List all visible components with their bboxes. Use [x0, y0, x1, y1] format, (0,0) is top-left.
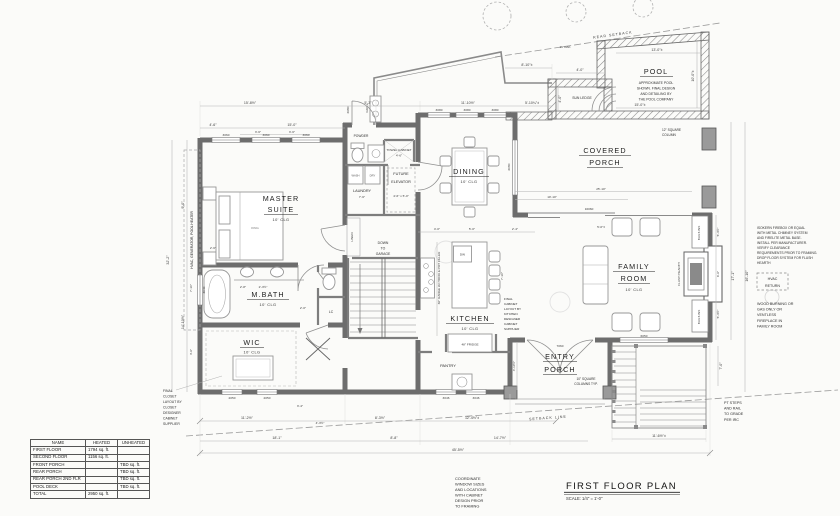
- stair-label: GARAGE: [376, 252, 391, 256]
- ceiling-height: 10' CLG: [462, 326, 479, 331]
- dimension-label: 5'-3½": [716, 228, 720, 237]
- armchair: [612, 218, 632, 236]
- dimension-label: 10'-10": [547, 195, 557, 199]
- dimension-label: 4'-0": [576, 68, 584, 72]
- room-label-family: ROOM: [621, 274, 648, 283]
- fireplace-spec-note: VERIFY CLEARANCE: [757, 246, 791, 250]
- dimension-label: 8'-8": [390, 436, 398, 440]
- dishwasher-label: DW: [460, 253, 465, 257]
- table-header-row: NAME HEATED UNHEATED: [31, 440, 150, 447]
- room-label-kitchen: KITCHEN: [450, 314, 489, 323]
- room-label-wic: WIC: [243, 338, 260, 347]
- room-label-powder: POWDER: [354, 134, 369, 138]
- room-label-elevator: ELEVATOR: [391, 180, 411, 184]
- dimension-label: 6'-6": [716, 271, 720, 277]
- dimension-label: 25'-10": [596, 187, 606, 191]
- dimension-label: 16'-10": [745, 270, 749, 282]
- closet-note: DESIGNER: [163, 411, 181, 415]
- table-row: FRONT PORCH TBD sq. ft.: [31, 461, 150, 468]
- pool-area: POOL APPROXIMATE POOL SHOWN. FINAL DESIG…: [506, 32, 709, 120]
- room-label-laundry: LAUNDRY: [353, 189, 372, 193]
- title-block: FIRST FLOOR PLAN SCALE: 1/4" = 1'-0": [564, 481, 680, 501]
- room-label-entry-porch: ENTRY: [545, 352, 575, 361]
- window-label: 3046: [473, 396, 480, 400]
- dimension-label: 8'-3½": [375, 416, 386, 420]
- dimension-label: 4'-6": [189, 349, 193, 355]
- dimension-label: 15'-8½": [244, 101, 257, 105]
- armchair: [640, 218, 660, 236]
- dimension-label: 9'-0": [181, 201, 185, 209]
- dimension-label: 2'-6": [210, 246, 216, 250]
- window-label: 3060: [303, 133, 310, 137]
- room-label-covered-porch: PORCH: [589, 158, 620, 167]
- chair: [440, 183, 451, 193]
- closet-note: FINAL: [163, 389, 173, 393]
- dimension-label: 5'-0": [469, 227, 475, 231]
- cabinet-note: DESIGNER: [504, 317, 521, 321]
- dimension-label: 4'-3½": [316, 421, 325, 425]
- row-name: FRONT PORCH: [31, 461, 86, 468]
- towel-cabinet-label: TOWEL CABINET: [386, 148, 411, 152]
- room-label-lc: LC: [329, 310, 334, 314]
- vanity: [368, 145, 384, 162]
- row-unheated: TBD sq. ft.: [118, 469, 150, 476]
- row-name: FIRST FLOOR: [31, 447, 86, 454]
- built-ins-label: BUILT-INS: [697, 310, 701, 325]
- row-heated: 1156 sq. ft.: [86, 454, 118, 461]
- dimension-label: 2'-4": [512, 227, 518, 231]
- dimension-label: 7'-10": [189, 284, 193, 292]
- window-label: 3080: [436, 108, 443, 112]
- room-label-covered-porch: COVERED: [583, 146, 626, 155]
- coordinate-note: TO FRAMING: [455, 504, 479, 509]
- dimension-label: 5'-0"±: [597, 225, 605, 229]
- cabinet-note: CABINET: [504, 302, 518, 306]
- dimension-label: 18'-1": [272, 436, 282, 440]
- dimension-label: 7'-6": [359, 195, 365, 199]
- room-label-master: SUITE: [268, 205, 295, 214]
- cabinet-note: SUPPLIER: [504, 327, 520, 331]
- stool: [489, 279, 500, 290]
- dimension-label: 4'-0": [558, 95, 562, 103]
- dimension-label: 5'-3": [364, 101, 372, 105]
- sheet-title: FIRST FLOOR PLAN: [566, 481, 677, 492]
- room-label-pantry: PANTRY: [440, 363, 456, 368]
- dimension-label: 3'-4": [297, 404, 303, 408]
- dimension-label: 2'-0": [300, 306, 306, 310]
- row-unheated: TBD sq. ft.: [118, 461, 150, 468]
- fridge-label: 48" FRIDGE: [461, 343, 478, 347]
- cabinet-note: KITCHEN: [504, 312, 518, 316]
- ceiling-height: 10' CLG: [273, 217, 290, 222]
- cabinet-note: FINAL: [504, 297, 513, 301]
- bed-label: KING: [251, 226, 259, 230]
- row-unheated: TBD sq. ft.: [118, 483, 150, 490]
- column-note: 12" SQUARE: [662, 128, 681, 132]
- row-name: TOTAL: [31, 491, 86, 498]
- room-label-dining: DINING: [453, 167, 485, 176]
- coordinate-note: COORDINATE: [455, 476, 481, 481]
- ceiling-height: 10' CLG: [626, 287, 643, 292]
- row-name: SECOND FLOOR: [31, 454, 86, 461]
- nightstand: [203, 187, 216, 200]
- stool: [489, 265, 500, 276]
- tree-canopy: [566, 2, 586, 22]
- toilet: [322, 268, 336, 274]
- room-label-family: FAMILY: [618, 262, 650, 271]
- wood-burning-note: GAS ONLY OR: [757, 308, 782, 312]
- sun-ledge-label: SUN LEDGE: [572, 96, 592, 100]
- dimension-label: 3'-6": [289, 130, 295, 134]
- chair: [488, 156, 499, 166]
- chair: [464, 207, 475, 217]
- dimension-label: 4'-10½": [512, 361, 516, 371]
- dimension-label: 45'-5½": [452, 448, 465, 452]
- pool-note: THE POOL COMPANY: [639, 98, 675, 102]
- chair: [488, 183, 499, 193]
- wood-burning-note: VENTLESS: [757, 313, 777, 317]
- table-row: POOL DECK TBD sq. ft.: [31, 483, 150, 490]
- area-table: NAME HEATED UNHEATED FIRST FLOOR 1794 sq…: [30, 439, 150, 499]
- dryer-label: DRY: [370, 174, 376, 178]
- stool: [489, 251, 500, 262]
- deck-steps: [612, 344, 707, 429]
- window-label: 2050: [264, 396, 271, 400]
- dimension-label: 11'-10½": [461, 101, 476, 105]
- armchair: [640, 313, 660, 331]
- sofa: [583, 246, 608, 304]
- cabinet-note: LAYOUT BY: [504, 307, 521, 311]
- dimension-label: 4'-6" x 5'-0": [393, 194, 409, 198]
- row-heated: [86, 469, 118, 476]
- dimension-label: 4'-6": [209, 123, 217, 127]
- table-row: FIRST FLOOR 1794 sq. ft.: [31, 447, 150, 454]
- room-label-entry-porch: PORCH: [544, 365, 575, 374]
- row-heated: 1794 sq. ft.: [86, 447, 118, 454]
- window-label: 6050: [641, 334, 648, 338]
- dimension-label: 5'-10¼"±: [525, 101, 539, 105]
- dimension-label: 12'-4½"±: [465, 416, 479, 420]
- window-label: 3080: [464, 108, 471, 112]
- row-name: REAR PORCH: [31, 469, 86, 476]
- pool-wall: [701, 32, 709, 119]
- row-heated: 2950 sq. ft.: [86, 491, 118, 498]
- room-label-elevator: FUTURE: [393, 172, 409, 176]
- dimension-label: 17'-1": [731, 271, 735, 281]
- ceiling-height: 10' CLG: [461, 179, 478, 184]
- pt-steps-note: PER IRC: [724, 418, 739, 422]
- door-label: 16060: [585, 207, 594, 211]
- door-label: 2680: [346, 106, 350, 113]
- built-ins-label: BUILT-INS: [697, 226, 701, 241]
- sliding-door: [528, 213, 692, 218]
- pt-steps-note: TO GRADE: [724, 412, 744, 416]
- col-header-name: NAME: [31, 440, 86, 447]
- ceiling-height: 10' CLG: [244, 350, 261, 355]
- fireplace-spec-note: WITH METAL CHIMNEY SYSTEM: [757, 231, 808, 235]
- washer-label: WASH: [352, 174, 360, 178]
- pool-wall: [548, 111, 709, 119]
- row-heated: [86, 461, 118, 468]
- dimension-label: 2'-3½": [259, 285, 268, 289]
- window-label: 3040: [202, 286, 206, 293]
- col-header-heated: HEATED: [86, 440, 118, 447]
- door-label: 7060: [557, 344, 564, 348]
- pt-steps-note: PT STEPS: [724, 401, 742, 405]
- row-unheated: TBD sq. ft.: [118, 476, 150, 483]
- stair-label: TO: [381, 247, 386, 251]
- chair: [464, 137, 475, 147]
- range-note: 36" RANGE W/ HOOD & POT FILLER: [437, 251, 441, 304]
- stair-label: DOWN: [378, 241, 389, 245]
- room-label-master: MASTER: [263, 194, 300, 203]
- tree-canopy: [633, 0, 653, 17]
- setback-line-label: SETBACK LINE: [529, 415, 567, 422]
- column-note: COLUMNS TYP.: [574, 382, 598, 386]
- pool-note: SHOWN. FINAL DESIGN: [637, 87, 676, 91]
- dimension-label: 32'-2": [166, 255, 170, 265]
- chair: [440, 156, 451, 166]
- pantry-counter: [452, 374, 472, 390]
- sheet-scale: SCALE: 1/4" = 1'-0": [566, 496, 603, 501]
- closet-note: CLOSET: [163, 395, 177, 399]
- window-label: 2050: [229, 396, 236, 400]
- row-unheated: [118, 491, 150, 498]
- col-header-unheated: UNHEATED: [118, 440, 150, 447]
- table-row: TOTAL 2950 sq. ft.: [31, 491, 150, 498]
- dimension-label: 15'-0": [287, 123, 297, 127]
- coordinate-note: DESIGN PRIOR: [455, 498, 484, 503]
- fireplace-spec-note: DROP FLOOR SYSTEM FOR FLUSH: [757, 256, 813, 260]
- fireplace-spec-note: AND FIRELITE METAL BASE.: [757, 236, 802, 240]
- row-heated: [86, 476, 118, 483]
- pool-label: POOL: [644, 67, 668, 76]
- table-row: SECOND FLOOR 1156 sq. ft.: [31, 454, 150, 461]
- coordinate-note: AND LOCATIONS: [455, 487, 487, 492]
- dimension-label: 5'-3½": [716, 310, 720, 319]
- closet-note: CLOSET: [163, 406, 177, 410]
- window-label: 3060: [223, 133, 230, 137]
- row-heated: [86, 483, 118, 490]
- wood-burning-note: FIREPLACE IN: [757, 319, 783, 323]
- dimension-label: 15'-0"±: [634, 103, 645, 107]
- dimension-label: 3'-6": [255, 130, 261, 134]
- coordinate-note: WITH CABINET: [455, 493, 484, 498]
- room-label-linen: LINEN: [350, 232, 354, 241]
- dimension-label: 4'-6": [396, 154, 402, 158]
- stool: [489, 293, 500, 304]
- pool-wall: [604, 87, 612, 111]
- dimension-label: 14'-10½": [181, 314, 185, 329]
- cabinet-note: CABINET: [504, 322, 518, 326]
- closet-note: CABINET: [163, 417, 178, 421]
- coordinate-note: WINDOW SIZES: [455, 482, 485, 487]
- pool-note: APPROXIMATE POOL: [639, 81, 674, 85]
- tub: [204, 270, 230, 318]
- fireplace-spec-note: REQUIREMENTS PRIOR TO FRAMING.: [757, 251, 817, 255]
- dimension-label: 11'-2½": [241, 416, 254, 420]
- sink: [241, 267, 254, 277]
- column-note: 10" SQUARE: [576, 377, 595, 381]
- floor-plan-sheet: 16"OAK REAR SETBACK SETBACK LINE GRILL P…: [0, 0, 840, 516]
- closet-note: SUPPLIER: [163, 422, 180, 426]
- tree-canopy: [483, 2, 511, 30]
- column-note: COLUMN: [662, 133, 677, 137]
- dimension-label: 4'-0": [434, 227, 440, 231]
- wood-burning-note: FAMILY ROOM: [757, 324, 782, 328]
- dimension-label: 7'-0": [719, 362, 723, 370]
- equipment-pad-label: HVAC, GENERATOR, POOL HEATER: [190, 211, 194, 269]
- row-name: POOL DECK: [31, 483, 86, 490]
- dimension-label: 13'-0"±: [651, 48, 662, 52]
- table-row: REAR PORCH TBD sq. ft.: [31, 469, 150, 476]
- sink: [271, 267, 284, 277]
- pool-note: AND DETAILING BY: [640, 92, 672, 96]
- room-label-mbath: M.BATH: [251, 290, 284, 299]
- entry-column: [504, 386, 517, 399]
- table-row: REAR PORCH 2ND FLR TBD sq. ft.: [31, 476, 150, 483]
- pt-steps-note: AND RAIL: [724, 407, 741, 411]
- flush-hearth-label: FLUSH HEARTH: [677, 262, 681, 286]
- window-label: 3046: [443, 396, 450, 400]
- sun-ledge-wall: [548, 79, 612, 87]
- dimension-label: 11'-6½"±: [652, 434, 666, 438]
- dimension-label: 10'-0"±: [691, 70, 695, 81]
- ceiling-height: 10' CLG: [260, 302, 277, 307]
- wood-burning-note: WOOD BURNING OR: [757, 302, 794, 306]
- dimension-label: 7'-10": [500, 272, 504, 280]
- closet-island: [233, 356, 273, 380]
- armchair: [612, 313, 632, 331]
- fireplace-spec-note: ISOKERN FIREBOX OR EQUAL: [757, 226, 805, 230]
- window-label: 3080: [492, 108, 499, 112]
- porch-column: [702, 186, 716, 208]
- oak-tree-label: 16"OAK: [559, 45, 571, 49]
- row-name: REAR PORCH 2ND FLR: [31, 476, 86, 483]
- fireplace-spec-note: INSTALL PER MANUFACTURER.: [757, 241, 807, 245]
- dimension-label: 2'-8": [240, 285, 246, 289]
- row-unheated: [118, 454, 150, 461]
- hvac-return-label: HVAC: [768, 277, 778, 281]
- dimension-label: 8'-10"±: [521, 63, 532, 67]
- closet-note: LAYOUT BY: [163, 400, 182, 404]
- row-unheated: [118, 447, 150, 454]
- door-label: 6080: [507, 163, 511, 170]
- fireplace-spec-note: HEARTH: [757, 261, 771, 265]
- hvac-return-label: RETURN: [765, 284, 780, 288]
- porch-column: [702, 128, 716, 150]
- nightstand: [203, 252, 216, 265]
- dimension-label: 14'-7½": [494, 436, 507, 440]
- window-label: 3060: [263, 133, 270, 137]
